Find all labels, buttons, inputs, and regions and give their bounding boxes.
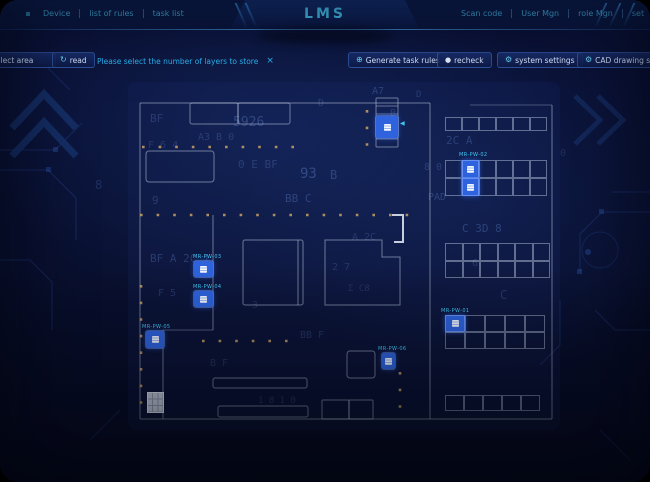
device-icon — [467, 184, 474, 191]
shelf-cell — [498, 261, 516, 279]
rack-label: MR-PW-01 — [441, 308, 470, 314]
device-marker-device-pw-03[interactable] — [194, 261, 213, 277]
menu-item-task-list[interactable]: task list — [143, 9, 193, 18]
device-icon — [152, 336, 159, 343]
shelf-cell — [445, 332, 465, 349]
pallet-grid-box — [147, 392, 164, 413]
menu-bullet-icon — [26, 12, 30, 16]
read-label: read — [70, 56, 87, 65]
device-label: MR-PW-03 — [193, 254, 222, 260]
shelf-cell — [463, 261, 481, 279]
menu-item-list-of-rules[interactable]: list of rules — [79, 9, 142, 18]
highlighted-shelf-cell[interactable] — [445, 315, 465, 332]
highlighted-shelf-cell[interactable] — [462, 160, 479, 178]
recheck-button[interactable]: ● recheck — [437, 52, 492, 68]
select-area-button[interactable]: select area — [0, 52, 56, 68]
shelf-cell — [485, 332, 505, 349]
shelf-cell — [498, 243, 516, 261]
generate-icon: ⊕ — [356, 56, 363, 64]
shelf-rack-rack-c — [445, 243, 550, 278]
app-window: BF5926DA7DA3 B 00 E BF93B9BB CBF A 2C 1F… — [0, 0, 650, 482]
shelf-cell — [496, 160, 513, 178]
shelf-cell — [479, 160, 496, 178]
shelf-cell — [483, 395, 502, 411]
floor-plan-canvas: BF5926DA7DA3 B 00 E BF93B9BB CBF A 2C 1F… — [0, 0, 650, 482]
header-bar: LMS Device list of rules task list Scan … — [0, 0, 650, 30]
close-icon[interactable]: × — [266, 56, 274, 66]
gear-icon: ⚙ — [505, 56, 512, 64]
device-marker-device-pw-04[interactable] — [194, 291, 213, 307]
gear-icon: ⚙ — [585, 56, 592, 64]
system-settings-label: system settings — [515, 56, 574, 65]
shelf-cell — [463, 243, 481, 261]
shelf-rack-rack-a — [445, 117, 547, 131]
device-icon — [467, 166, 474, 173]
shelf-cell — [530, 178, 547, 196]
shelf-cell — [445, 160, 462, 178]
shelf-cell — [445, 261, 463, 279]
shelf-cell — [525, 315, 545, 332]
shelf-cell — [496, 117, 513, 131]
generate-task-rules-button[interactable]: ⊕ Generate task rules — [348, 52, 448, 68]
device-marker-device-pw-06[interactable] — [382, 353, 395, 369]
menu-item-device[interactable]: Device — [34, 9, 79, 18]
device-icon — [384, 124, 391, 131]
hint-message-text: Please select the number of layers to st… — [97, 57, 258, 66]
device-marker-device-pw-05[interactable] — [146, 331, 164, 348]
shelf-cell — [521, 395, 540, 411]
shelf-cell — [505, 315, 525, 332]
shelf-cell — [445, 178, 462, 196]
generate-task-rules-label: Generate task rules — [366, 56, 440, 65]
device-icon — [385, 358, 392, 365]
menu-item-set[interactable]: set — [622, 9, 650, 18]
menu-item-scan-code[interactable]: Scan code — [452, 9, 511, 18]
select-area-label: select area — [0, 56, 33, 65]
shelf-cell — [515, 243, 533, 261]
shelf-cell — [479, 117, 496, 131]
shelf-cell — [465, 315, 485, 332]
shelf-rack-rack-b — [445, 160, 547, 196]
shelf-cell — [480, 243, 498, 261]
device-label: MR-PW-04 — [193, 284, 222, 290]
cad-drawing-settings-button[interactable]: ⚙ CAD drawing settings — [577, 52, 650, 68]
shelf-cell — [479, 178, 496, 196]
pointer-arrow-icon: ◀ — [400, 120, 405, 127]
read-button[interactable]: ↻ read — [52, 52, 95, 68]
rack-label: MR-PW-02 — [459, 152, 488, 158]
highlighted-shelf-cell[interactable] — [462, 178, 479, 196]
shelf-cell — [533, 261, 551, 279]
shelf-cell — [485, 315, 505, 332]
floor-plan-drawing — [0, 0, 650, 482]
device-icon — [200, 266, 207, 273]
shelf-cell — [445, 395, 464, 411]
menu-item-user-mgn[interactable]: User Mgn — [511, 9, 568, 18]
cad-drawing-settings-label: CAD drawing settings — [595, 56, 650, 65]
shelf-cell — [480, 261, 498, 279]
shelf-cell — [465, 332, 485, 349]
device-icon — [452, 320, 459, 327]
main-menu-right: Scan code User Mgn role Mgn set — [452, 9, 650, 18]
device-icon — [200, 296, 207, 303]
hint-message: Please select the number of layers to st… — [97, 56, 274, 66]
shelf-cell — [496, 178, 513, 196]
shelf-rack-rack-d — [445, 315, 545, 349]
device-marker-rack-station[interactable] — [376, 116, 398, 138]
shelf-cell — [462, 117, 479, 131]
shelf-cell — [502, 395, 521, 411]
device-label: MR-PW-05 — [142, 324, 171, 330]
shelf-rack-rack-e — [445, 395, 540, 411]
menu-item-role-mgn[interactable]: role Mgn — [568, 9, 622, 18]
shelf-cell — [530, 117, 547, 131]
shelf-cell — [513, 178, 530, 196]
shelf-cell — [513, 160, 530, 178]
shelf-cell — [525, 332, 545, 349]
system-settings-button[interactable]: ⚙ system settings — [497, 52, 583, 68]
shelf-cell — [464, 395, 483, 411]
recheck-label: recheck — [454, 56, 484, 65]
refresh-icon: ↻ — [60, 56, 67, 64]
main-menu-left: Device list of rules task list — [26, 9, 193, 18]
shelf-cell — [445, 243, 463, 261]
shelf-cell — [505, 332, 525, 349]
device-label: MR-PW-06 — [378, 346, 407, 352]
shelf-cell — [515, 261, 533, 279]
recheck-dot-icon: ● — [445, 57, 451, 64]
title-tab-shadow — [258, 28, 392, 44]
shelf-cell — [530, 160, 547, 178]
shelf-cell — [445, 117, 462, 131]
shelf-cell — [513, 117, 530, 131]
shelf-cell — [533, 243, 551, 261]
